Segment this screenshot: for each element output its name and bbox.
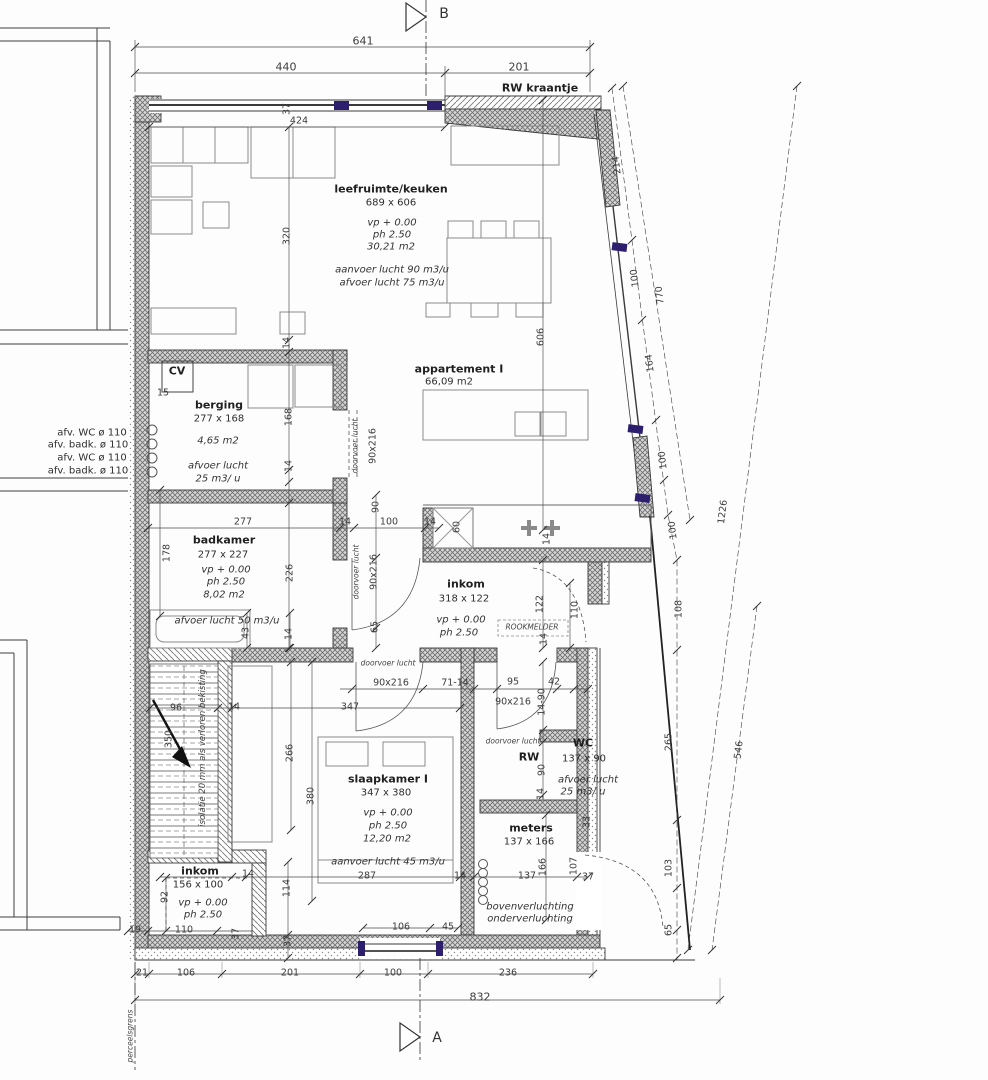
floor-plan-drawing — [0, 0, 988, 1080]
section-a-arrow-icon — [400, 1023, 420, 1051]
neighbor-building — [0, 28, 133, 930]
smoke-detector-zone — [498, 620, 568, 636]
stove-icon — [521, 520, 560, 536]
section-markers — [135, 0, 426, 1070]
floor-plan-canvas: B641440201RW kraantje3742432014606leefru… — [0, 0, 988, 1080]
staircase — [150, 664, 218, 858]
section-b-arrow-icon — [406, 3, 426, 31]
